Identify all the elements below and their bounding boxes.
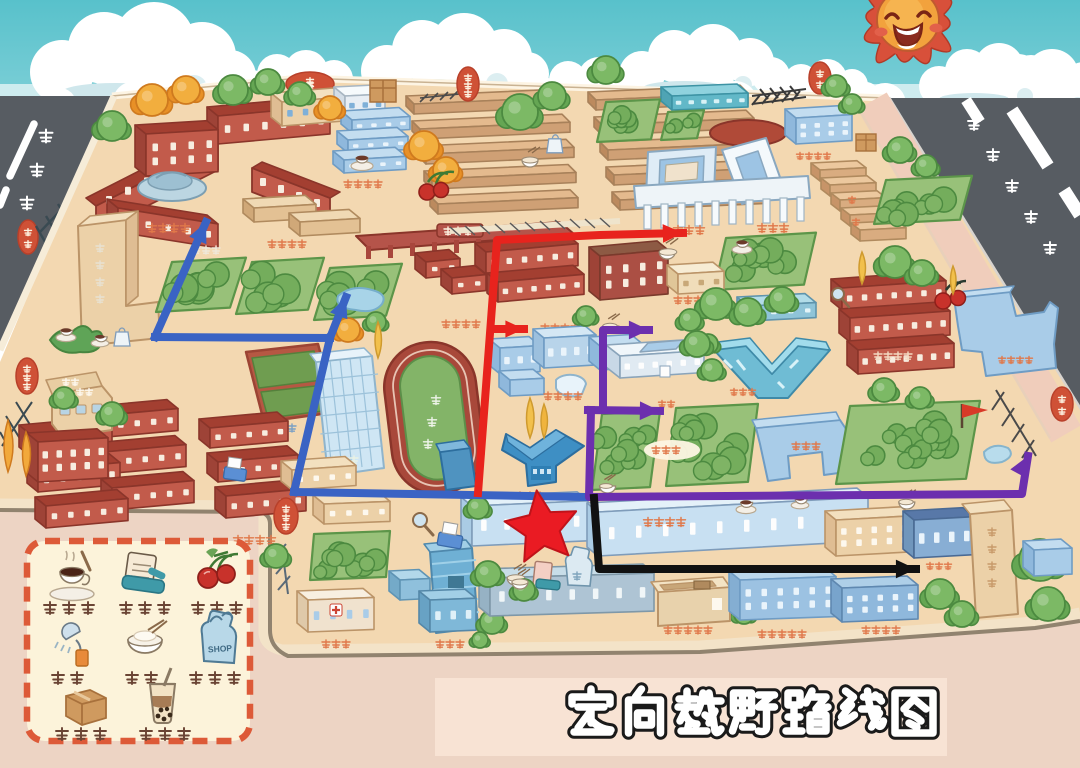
svg-text:SHOP: SHOP	[208, 643, 233, 655]
